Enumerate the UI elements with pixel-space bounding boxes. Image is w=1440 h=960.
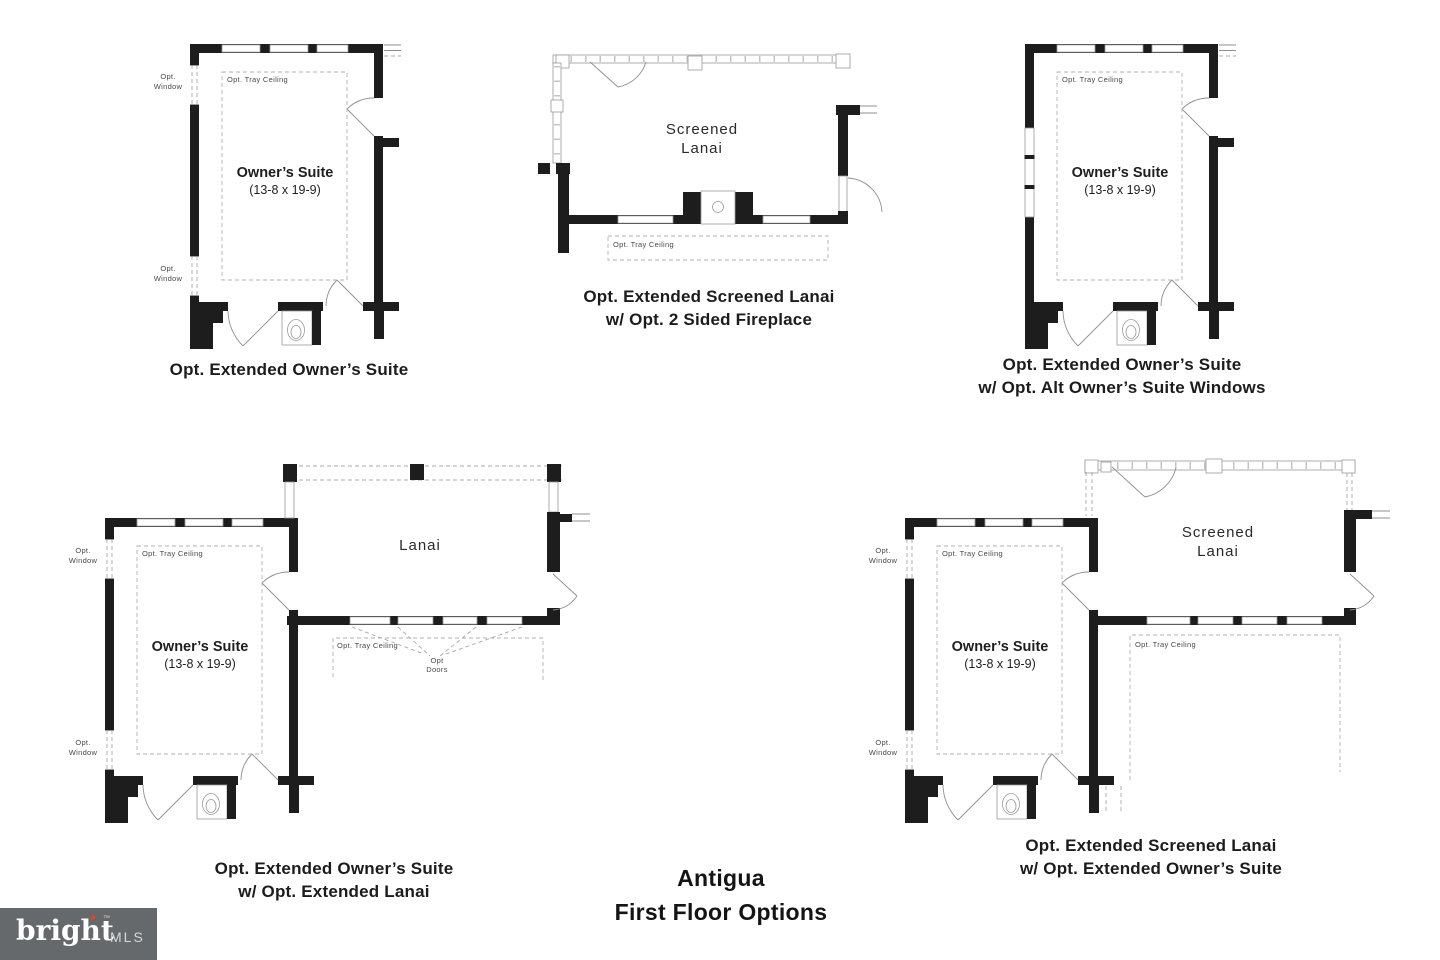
extended-lanai: Lanai Opt. Tray Ceiling Opt Doors [283,464,590,680]
sheet-title-line1: Antigua [531,861,911,895]
plan-extended-owners-suite-extended-lanai: Lanai Opt. Tray Ceiling Opt Doors [69,464,590,823]
lanai-label: Lanai [399,537,441,554]
screen-door [590,62,646,87]
plan3-caption-line1: Opt. Extended Owner’s Suite [922,353,1322,376]
plan4-caption-line2: w/ Opt. Extended Lanai [164,880,504,903]
plan-extended-owners-suite-alt-windows [1025,44,1237,349]
plan3-caption-line2: w/ Opt. Alt Owner’s Suite Windows [922,376,1322,399]
mls-label: MLS [110,929,145,945]
plan1-caption: Opt. Extended Owner’s Suite [119,358,459,381]
bright-mls-logo: bright ✦ ™ MLS [0,908,157,960]
tray-ceiling-label: Opt. Tray Ceiling [337,641,398,650]
bright-mls-wordmark: bright [16,914,114,947]
plan2-caption: Opt. Extended Screened Lanai w/ Opt. 2 S… [539,285,879,331]
floor-plans-drawing: Opt. Tray Ceiling Owner’s Suite (13-8 x … [0,0,1440,960]
plan4-caption-line1: Opt. Extended Owner’s Suite [164,857,504,880]
screened-lanai-label: Lanai [681,140,723,157]
plan5-caption-line2: w/ Opt. Extended Owner’s Suite [961,857,1341,880]
plan5-caption: Opt. Extended Screened Lanai w/ Opt. Ext… [961,834,1341,880]
plan2-caption-line2: w/ Opt. 2 Sided Fireplace [539,308,879,331]
alt-owners-suite-windows [1025,128,1034,217]
floor-plan-sheet: Opt. Tray Ceiling Owner’s Suite (13-8 x … [0,0,1440,960]
screen-door [1112,467,1176,497]
sheet-title: Antigua First Floor Options [531,861,911,929]
screened-lanai-label: Screened [666,121,738,138]
plan-extended-owners-suite [154,44,401,349]
plan2-caption-line1: Opt. Extended Screened Lanai [539,285,879,308]
extended-screened-lanai: Screened Lanai Opt. Tray Ceiling [1085,459,1390,812]
screened-lanai-label: Lanai [1197,543,1239,560]
opt-doors-label: Opt [431,656,445,665]
two-sided-fireplace [683,191,753,224]
sheet-title-line2: First Floor Options [531,895,911,929]
opt-doors-label: Doors [426,665,448,674]
trademark-symbol: ™ [103,915,110,922]
plan1-caption-line1: Opt. Extended Owner’s Suite [119,358,459,381]
plan5-caption-line1: Opt. Extended Screened Lanai [961,834,1341,857]
tray-ceiling-label: Opt. Tray Ceiling [1135,640,1196,649]
logo-star-icon: ✦ [88,911,98,925]
plan-extended-screened-lanai-extended-owners-suite: Screened Lanai Opt. Tray Ceiling [869,459,1390,823]
screened-lanai-label: Screened [1182,524,1254,541]
plan4-caption: Opt. Extended Owner’s Suite w/ Opt. Exte… [164,857,504,903]
plan3-caption: Opt. Extended Owner’s Suite w/ Opt. Alt … [922,353,1322,399]
plan-extended-screened-lanai-fireplace: Screened Lanai Opt. Tray Ceiling [538,54,882,260]
tray-ceiling-label: Opt. Tray Ceiling [613,240,674,249]
